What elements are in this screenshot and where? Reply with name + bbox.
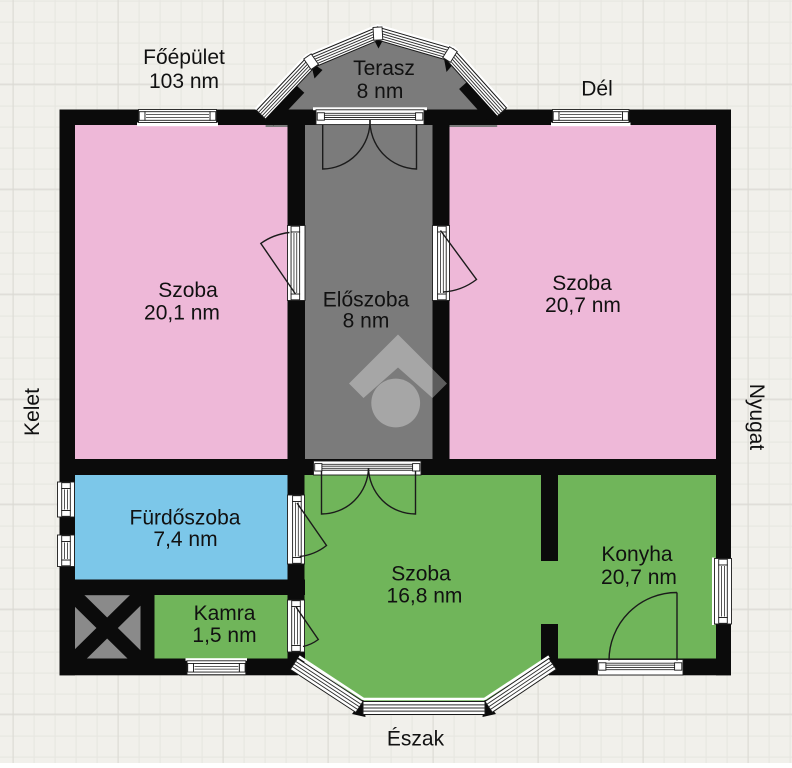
svg-text:103 nm: 103 nm <box>149 70 219 93</box>
svg-text:Szoba: Szoba <box>391 563 451 586</box>
svg-text:20,7 nm: 20,7 nm <box>545 294 621 317</box>
svg-text:Konyha: Konyha <box>601 543 673 566</box>
svg-text:Dél: Dél <box>581 78 613 101</box>
svg-text:Nyugat: Nyugat <box>745 384 768 451</box>
svg-text:Kelet: Kelet <box>21 388 44 436</box>
svg-text:Terasz: Terasz <box>353 57 415 80</box>
svg-text:20,7 nm: 20,7 nm <box>601 566 677 589</box>
svg-text:8 nm: 8 nm <box>343 310 390 333</box>
svg-text:Főépület: Főépület <box>143 46 225 69</box>
svg-text:Kamra: Kamra <box>194 602 256 625</box>
svg-text:Szoba: Szoba <box>158 279 218 302</box>
svg-text:Észak: Észak <box>387 728 445 751</box>
svg-text:7,4 nm: 7,4 nm <box>153 528 217 551</box>
svg-text:8 nm: 8 nm <box>357 80 404 103</box>
svg-text:Előszoba: Előszoba <box>323 289 410 312</box>
svg-text:Fürdőszoba: Fürdőszoba <box>130 507 241 530</box>
svg-text:Szoba: Szoba <box>552 272 612 295</box>
svg-text:20,1 nm: 20,1 nm <box>144 302 220 325</box>
svg-text:16,8 nm: 16,8 nm <box>387 585 463 608</box>
svg-text:1,5 nm: 1,5 nm <box>192 624 256 647</box>
